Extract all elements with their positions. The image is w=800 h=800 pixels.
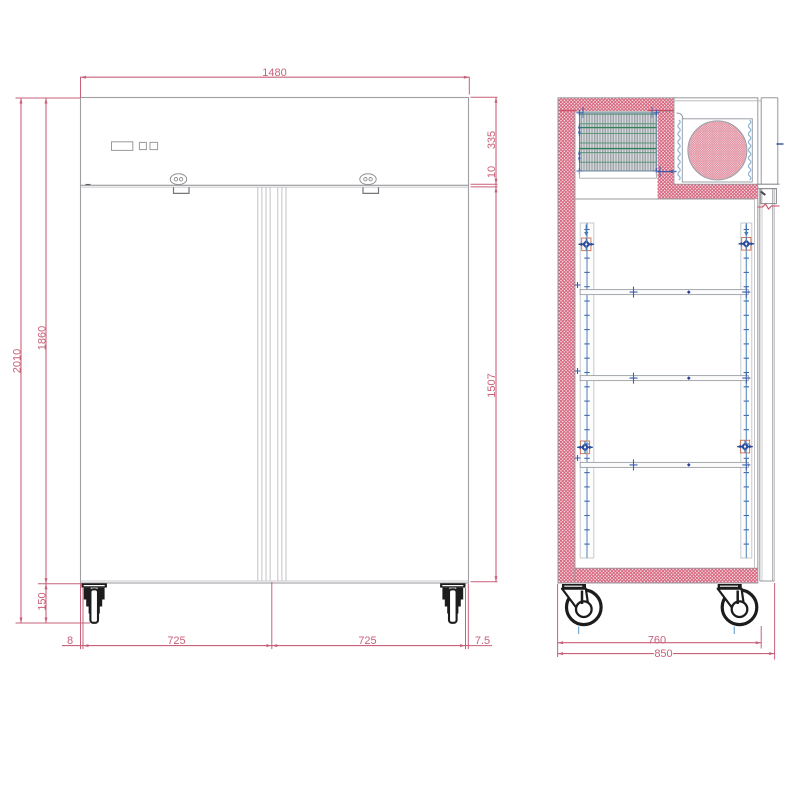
svg-text:2010: 2010 <box>12 349 24 373</box>
svg-text:1860: 1860 <box>37 326 49 350</box>
svg-text:725: 725 <box>167 635 185 647</box>
svg-text:150: 150 <box>36 592 48 610</box>
svg-text:335: 335 <box>486 131 498 149</box>
svg-text:7.5: 7.5 <box>475 635 490 647</box>
svg-text:760: 760 <box>648 635 666 647</box>
svg-text:725: 725 <box>358 635 376 647</box>
svg-text:8: 8 <box>67 635 73 647</box>
svg-text:1507: 1507 <box>486 373 498 397</box>
svg-text:850: 850 <box>654 648 672 660</box>
svg-text:10: 10 <box>486 166 498 178</box>
svg-text:1480: 1480 <box>262 67 286 79</box>
